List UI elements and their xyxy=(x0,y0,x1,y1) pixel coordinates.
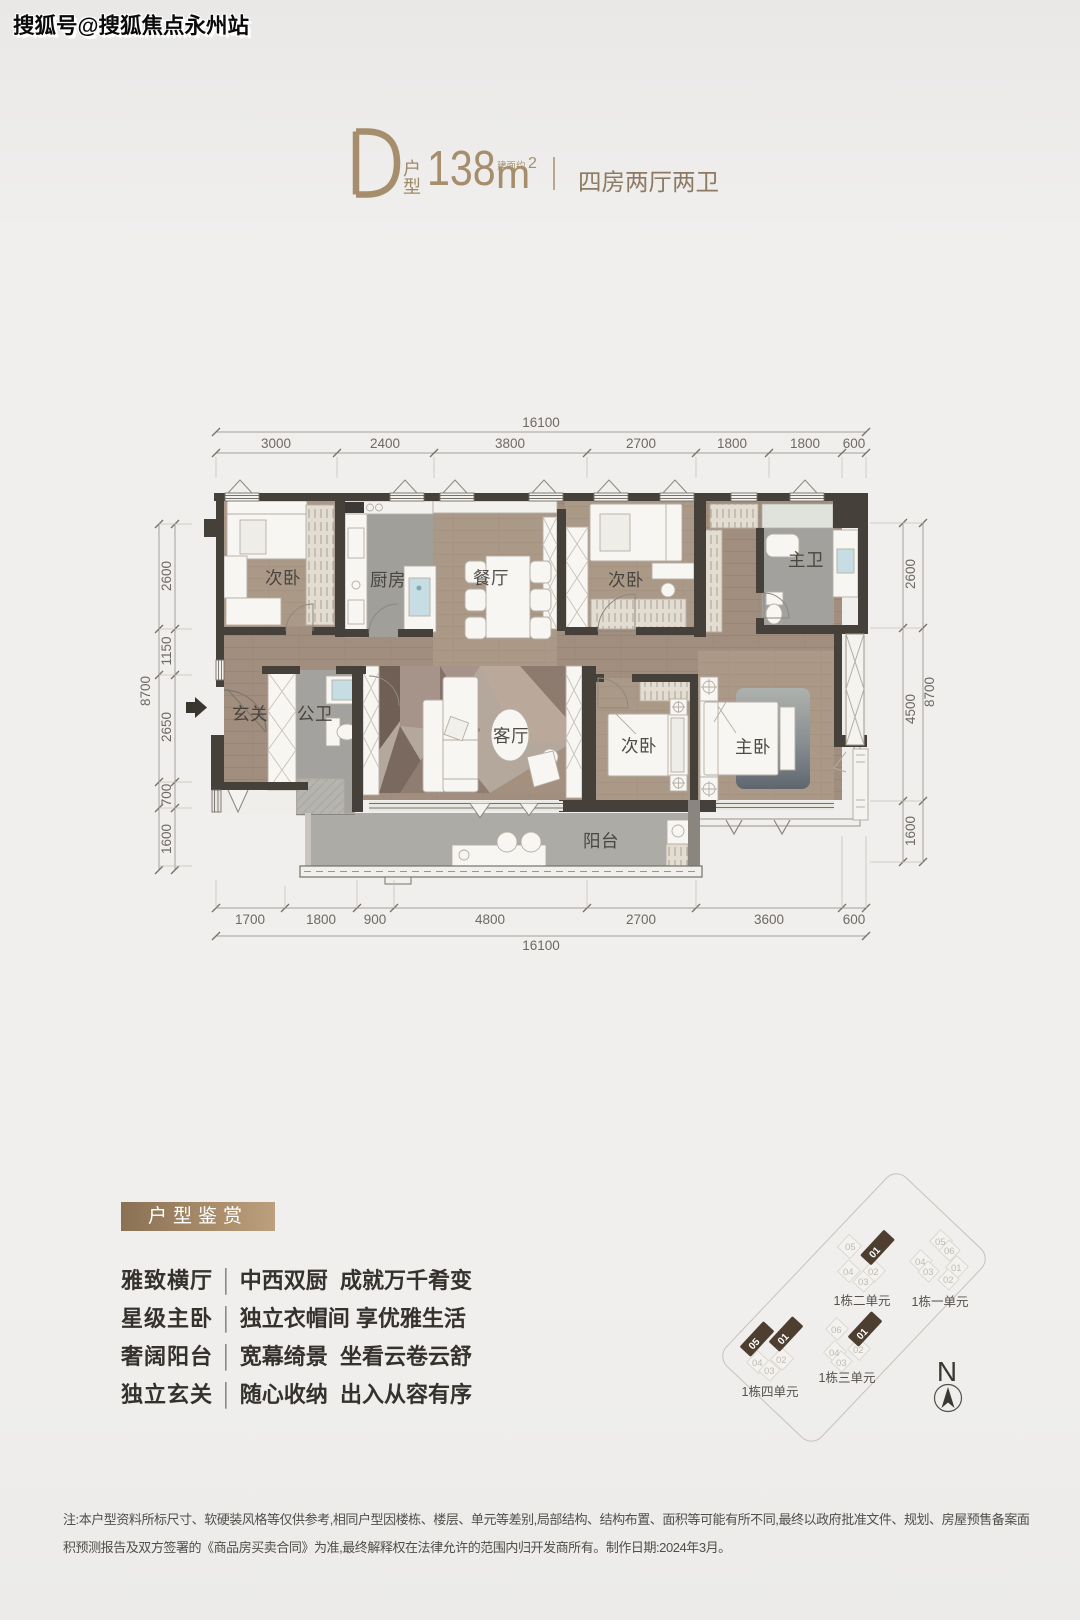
svg-text:01: 01 xyxy=(951,1263,962,1274)
svg-text:1栋二单元: 1栋二单元 xyxy=(834,1293,891,1308)
svg-text:厨房: 厨房 xyxy=(370,570,406,590)
svg-text:次卧: 次卧 xyxy=(265,568,301,588)
svg-text:2600: 2600 xyxy=(903,559,918,589)
svg-text:1600: 1600 xyxy=(159,824,174,854)
svg-text:1600: 1600 xyxy=(903,816,918,846)
svg-text:主卧: 主卧 xyxy=(735,737,771,757)
svg-text:1800: 1800 xyxy=(306,912,336,927)
svg-text:玄关: 玄关 xyxy=(232,704,268,724)
svg-text:3600: 3600 xyxy=(754,912,784,927)
svg-text:02: 02 xyxy=(853,1345,864,1356)
svg-text:2700: 2700 xyxy=(626,436,656,451)
svg-text:1800: 1800 xyxy=(790,436,820,451)
svg-text:02: 02 xyxy=(943,1275,954,1286)
svg-text:4800: 4800 xyxy=(475,912,505,927)
svg-text:16100: 16100 xyxy=(522,938,560,953)
svg-text:2600: 2600 xyxy=(159,561,174,591)
svg-text:4500: 4500 xyxy=(903,694,918,724)
svg-text:3800: 3800 xyxy=(495,436,525,451)
svg-text:1150: 1150 xyxy=(159,636,174,665)
svg-text:02: 02 xyxy=(868,1267,879,1278)
svg-text:06: 06 xyxy=(831,1325,842,1336)
svg-text:03: 03 xyxy=(923,1267,934,1278)
svg-text:03: 03 xyxy=(764,1366,775,1377)
svg-text:次卧: 次卧 xyxy=(621,736,657,756)
svg-text:3000: 3000 xyxy=(261,436,291,451)
svg-text:06: 06 xyxy=(944,1246,955,1257)
svg-text:700: 700 xyxy=(159,784,174,807)
svg-text:04: 04 xyxy=(843,1267,854,1278)
svg-text:2400: 2400 xyxy=(370,436,400,451)
svg-text:公卫: 公卫 xyxy=(297,704,333,724)
svg-text:1800: 1800 xyxy=(717,436,747,451)
svg-text:N: N xyxy=(937,1356,957,1387)
svg-text:02: 02 xyxy=(776,1355,787,1366)
svg-text:1700: 1700 xyxy=(235,912,265,927)
svg-text:03: 03 xyxy=(858,1277,869,1288)
svg-text:2700: 2700 xyxy=(626,912,656,927)
svg-text:16100: 16100 xyxy=(522,415,560,430)
svg-text:03: 03 xyxy=(836,1358,847,1369)
svg-text:1栋一单元: 1栋一单元 xyxy=(912,1294,969,1309)
svg-text:05: 05 xyxy=(845,1242,856,1253)
svg-text:餐厅: 餐厅 xyxy=(473,568,509,588)
svg-text:900: 900 xyxy=(364,912,387,927)
svg-text:600: 600 xyxy=(843,436,866,451)
svg-text:8700: 8700 xyxy=(138,676,153,706)
svg-text:04: 04 xyxy=(752,1358,763,1369)
svg-text:客厅: 客厅 xyxy=(493,726,529,746)
svg-text:阳台: 阳台 xyxy=(583,831,619,851)
svg-text:次卧: 次卧 xyxy=(608,570,644,590)
svg-text:600: 600 xyxy=(843,912,866,927)
svg-text:主卫: 主卫 xyxy=(788,550,824,570)
svg-text:1栋三单元: 1栋三单元 xyxy=(819,1370,876,1385)
svg-text:8700: 8700 xyxy=(922,677,937,707)
svg-text:2650: 2650 xyxy=(159,712,174,742)
svg-text:1栋四单元: 1栋四单元 xyxy=(742,1384,799,1399)
